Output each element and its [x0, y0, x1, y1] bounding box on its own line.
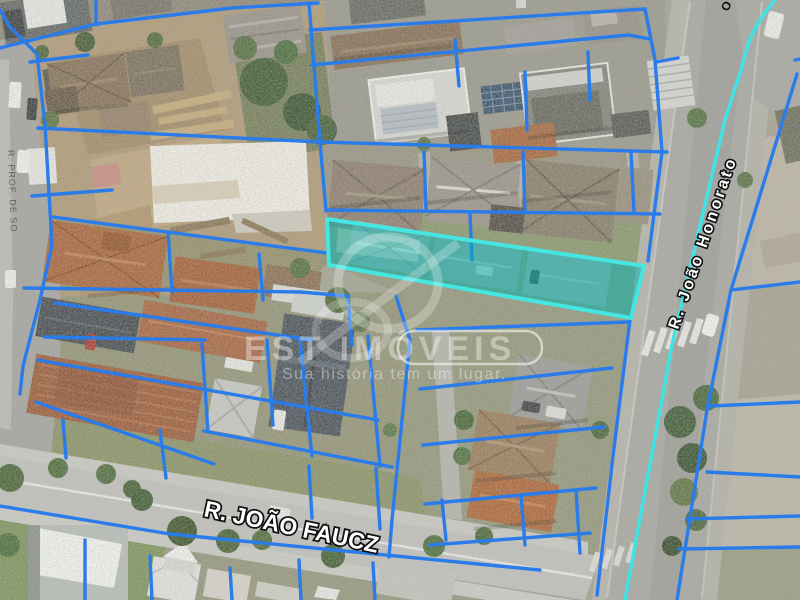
svg-text:Sua história tem um lugar.: Sua história tem um lugar.: [282, 366, 507, 383]
svg-text:EST IMÓVEIS: EST IMÓVEIS: [244, 330, 516, 368]
